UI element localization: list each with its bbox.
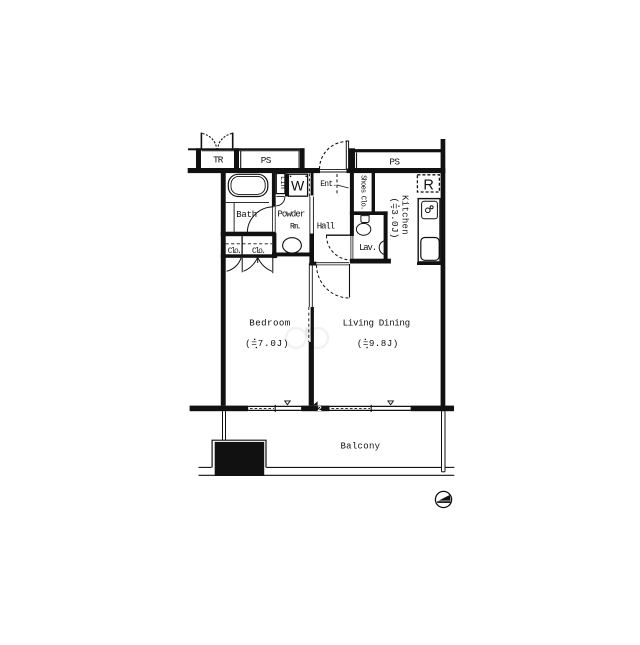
svg-text:Rm.: Rm. <box>290 223 300 232</box>
svg-text:2: 2 <box>317 406 322 414</box>
svg-text:Balcony: Balcony <box>340 441 380 451</box>
svg-text:Bath: Bath <box>236 210 257 220</box>
svg-text:Lav.: Lav. <box>359 243 376 253</box>
svg-text:PS: PS <box>389 157 400 168</box>
svg-text:R: R <box>423 178 433 194</box>
svg-text:W: W <box>291 178 305 194</box>
svg-text:(=9.8J): (=9.8J) <box>357 338 399 349</box>
svg-text:PS: PS <box>261 155 272 166</box>
svg-text:Ent.: Ent. <box>320 180 336 189</box>
svg-text:Hall: Hall <box>317 222 335 232</box>
svg-text:Shoes Clo.: Shoes Clo. <box>358 175 366 209</box>
svg-text:Powder: Powder <box>277 210 305 220</box>
svg-text:(=7.0J): (=7.0J) <box>245 338 289 349</box>
svg-text:(=3.0J): (=3.0J) <box>389 197 400 238</box>
svg-text:Bedroom: Bedroom <box>249 317 290 328</box>
svg-text:Living Dining: Living Dining <box>343 317 410 328</box>
svg-text:Lin: Lin <box>278 176 286 189</box>
svg-text:TR: TR <box>213 155 224 166</box>
